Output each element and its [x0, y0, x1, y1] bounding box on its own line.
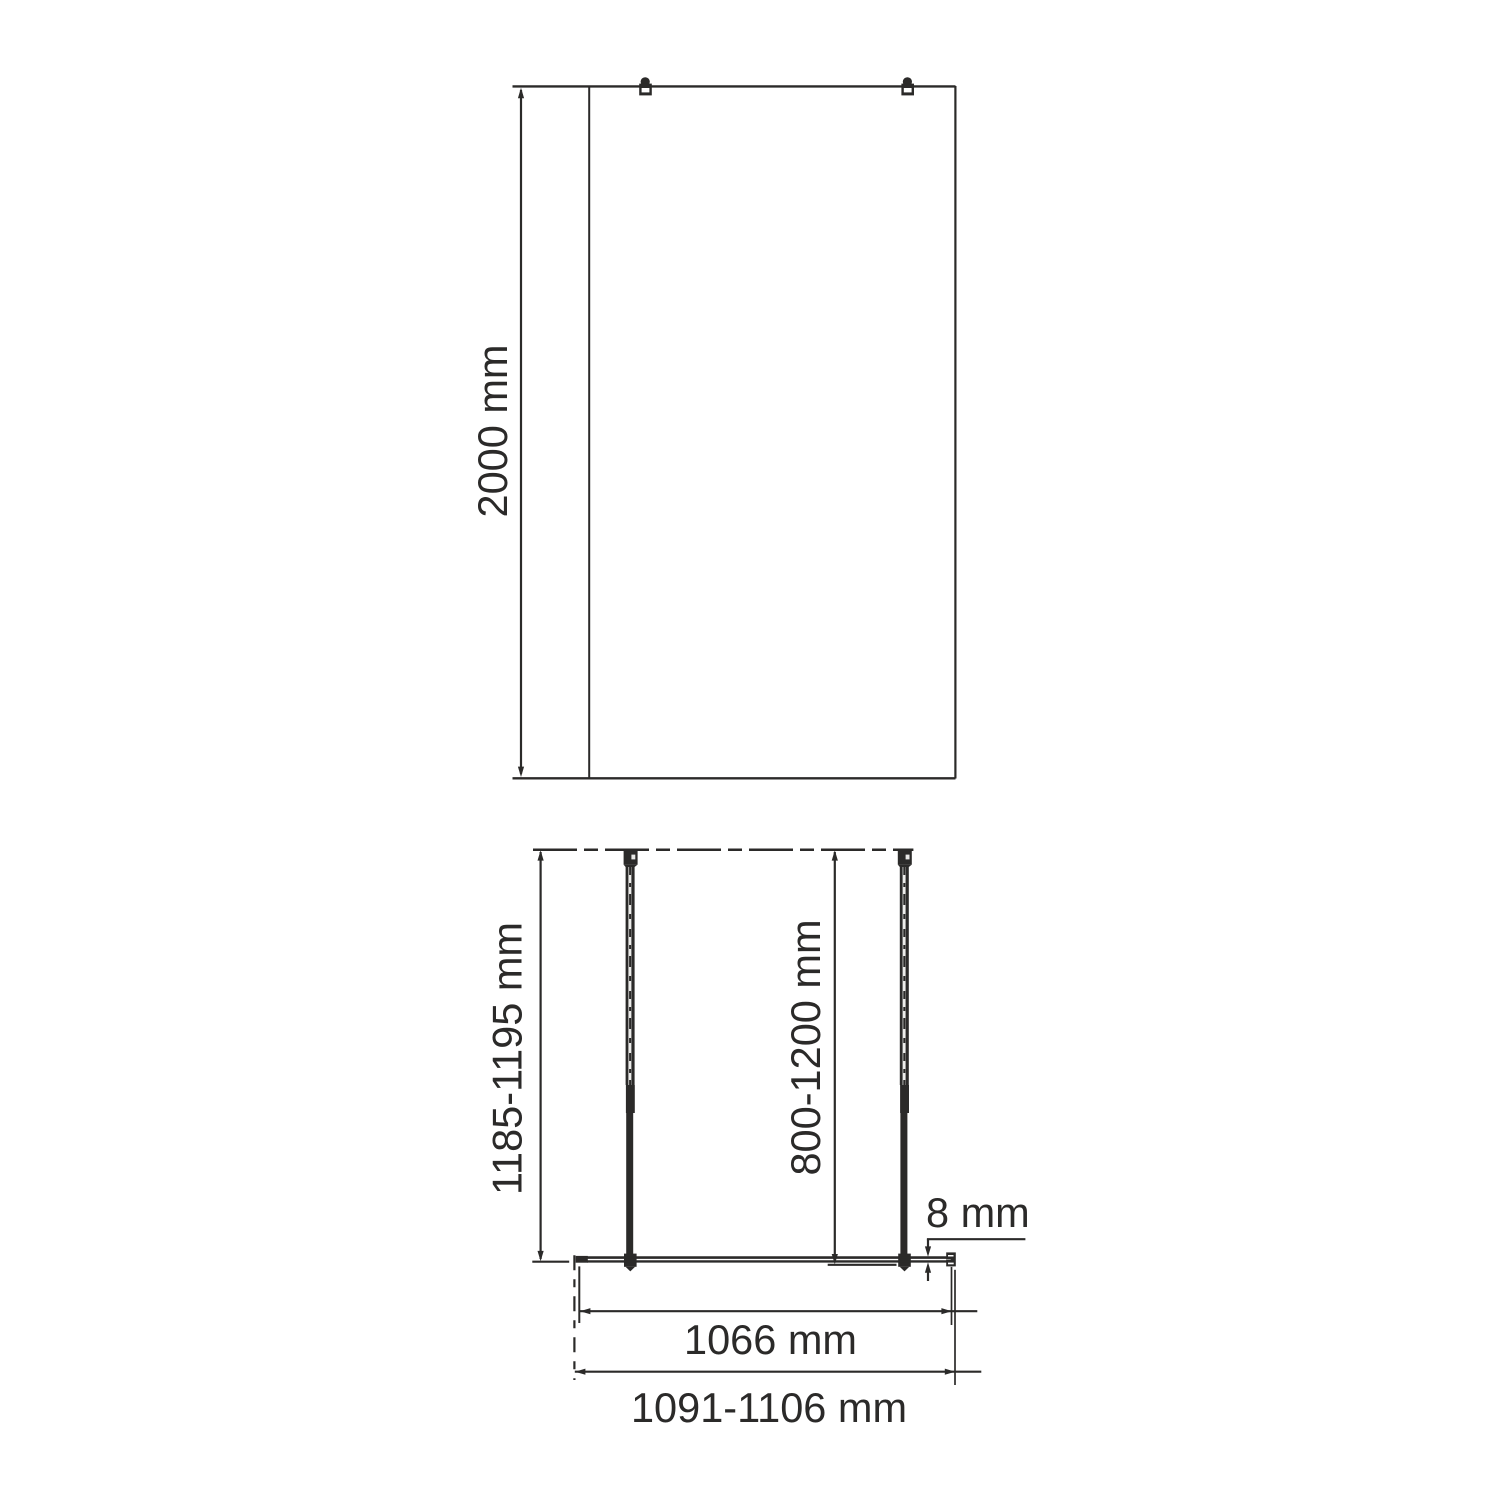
svg-text:8 mm: 8 mm [926, 1189, 1030, 1236]
svg-text:1091-1106 mm: 1091-1106 mm [631, 1384, 907, 1431]
svg-text:1185-1195 mm: 1185-1195 mm [484, 922, 531, 1195]
svg-text:2000 mm: 2000 mm [469, 345, 516, 518]
svg-text:800-1200 mm: 800-1200 mm [782, 919, 829, 1175]
svg-text:1066 mm: 1066 mm [684, 1316, 857, 1363]
